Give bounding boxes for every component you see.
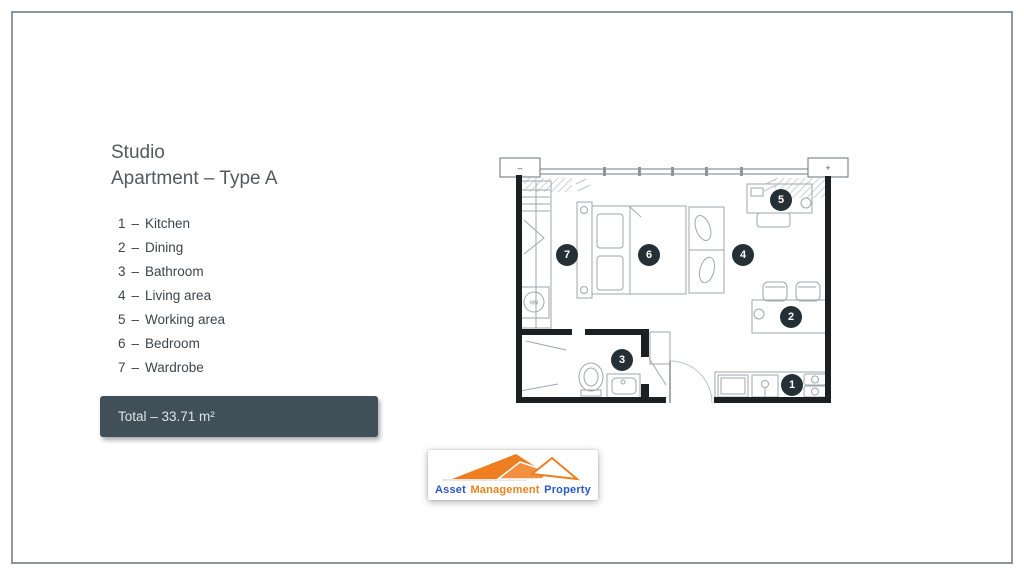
logo-wordmark: Asset Management Property [428, 484, 598, 496]
logo-word-property: Property [544, 484, 591, 496]
sofa [689, 207, 724, 293]
kitchen-counter [715, 372, 827, 398]
washing-machine: WM [519, 287, 549, 318]
right-cap-glyph: + [825, 163, 830, 173]
plan-marker-kitchen: 1 [781, 374, 803, 396]
logo-word-management: Management [470, 484, 539, 496]
slide: Studio Apartment – Type A 1–Kitchen 2–Di… [0, 0, 1024, 576]
window-band [540, 167, 808, 176]
company-logo: Asset Management Property [428, 450, 598, 500]
plan-marker-wardrobe: 7 [556, 244, 578, 266]
washing-machine-label: WM [530, 301, 539, 307]
plan-marker-bathroom: 3 [611, 349, 633, 371]
bed [577, 202, 686, 298]
left-cap-glyph: – [517, 163, 522, 173]
entrance-door [670, 361, 712, 403]
plan-marker-working-area: 5 [770, 189, 792, 211]
plan-marker-living-area: 4 [732, 244, 754, 266]
plan-marker-dining: 2 [780, 306, 802, 328]
logo-word-asset: Asset [435, 484, 466, 496]
plan-marker-bedroom: 6 [638, 244, 660, 266]
